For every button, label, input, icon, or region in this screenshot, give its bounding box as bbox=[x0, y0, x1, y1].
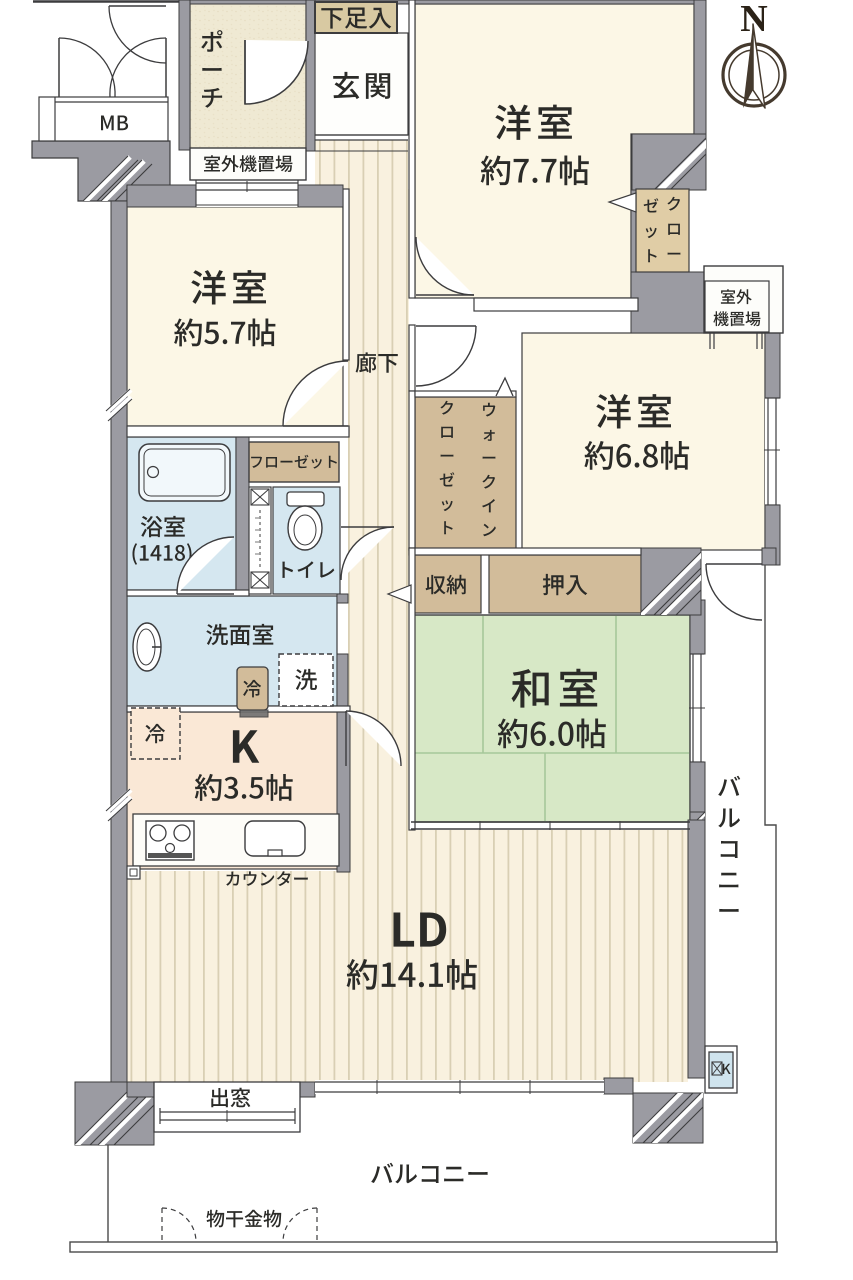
svg-text:N: N bbox=[740, 0, 767, 40]
